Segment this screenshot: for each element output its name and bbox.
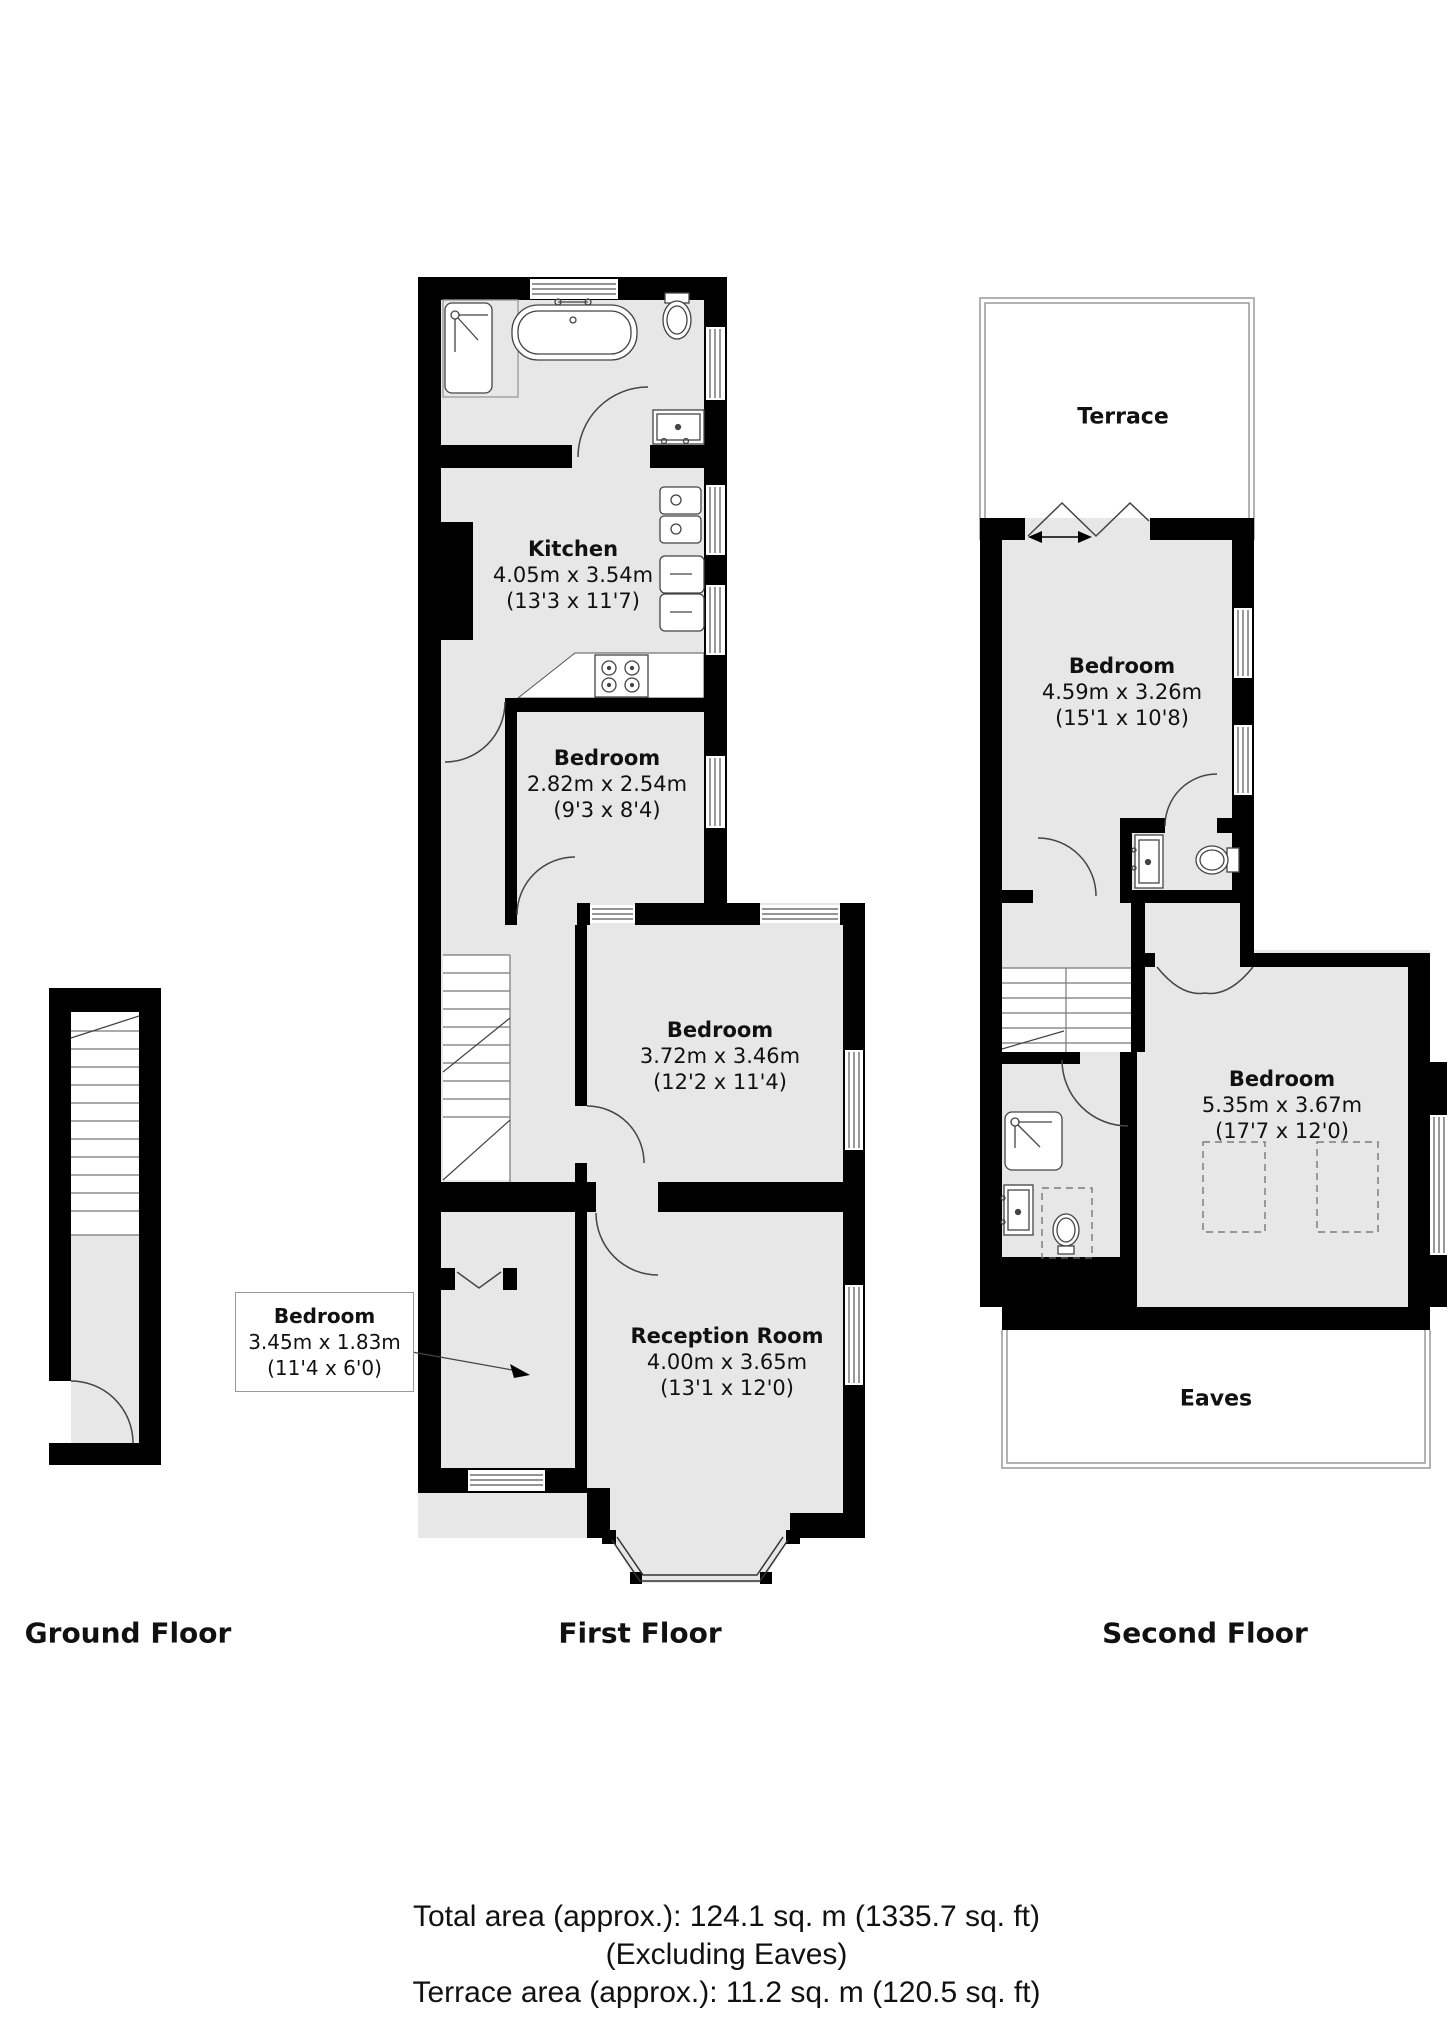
room-imperial: (15'1 x 10'8) (1042, 705, 1202, 731)
total-area-text: Total area (approx.): 124.1 sq. m (1335.… (0, 1898, 1453, 1936)
floor-title-second: Second Floor (1102, 1617, 1308, 1650)
room-label-bedroom-big2f: Bedroom 5.35m x 3.67m (17'7 x 12'0) (1202, 1066, 1362, 1144)
washbasin (1001, 1185, 1033, 1235)
room-name: Bedroom (527, 745, 687, 771)
room-metric: 4.59m x 3.26m (1042, 679, 1202, 705)
floorplan-canvas: Kitchen 4.05m x 3.54m (13'3 x 11'7) Bedr… (0, 0, 1453, 2025)
toilet (663, 293, 691, 339)
room-name: Bedroom (1042, 653, 1202, 679)
terrace-area-text: Terrace area (approx.): 11.2 sq. m (120.… (0, 1974, 1453, 2012)
room-label-bedroom-middle: Bedroom 3.72m x 3.46m (12'2 x 11'4) (640, 1017, 800, 1095)
room-metric: 2.82m x 2.54m (527, 771, 687, 797)
hob (595, 655, 648, 697)
room-label-bedroom-narrow-callout: Bedroom 3.45m x 1.83m (11'4 x 6'0) (235, 1292, 414, 1392)
room-label-kitchen: Kitchen 4.05m x 3.54m (13'3 x 11'7) (493, 536, 653, 614)
room-metric: 4.00m x 3.65m (631, 1349, 824, 1375)
room-label-reception: Reception Room 4.00m x 3.65m (13'1 x 12'… (631, 1323, 824, 1401)
room-metric: 4.05m x 3.54m (493, 562, 653, 588)
ensuite-basin (1132, 835, 1163, 888)
room-name: Bedroom (640, 1017, 800, 1043)
room-name: Bedroom (1202, 1066, 1362, 1092)
second-floor-plan (980, 298, 1447, 1468)
room-metric: 5.35m x 3.67m (1202, 1092, 1362, 1118)
room-name: Kitchen (493, 536, 653, 562)
washbasin (653, 410, 704, 444)
staircase-area (443, 955, 510, 1180)
floor-title-ground: Ground Floor (25, 1617, 232, 1650)
room-imperial: (9'3 x 8'4) (527, 797, 687, 823)
room-metric: 3.45m x 1.83m (236, 1329, 413, 1355)
room-imperial: (13'1 x 12'0) (631, 1375, 824, 1401)
room-label-bedroom-small: Bedroom 2.82m x 2.54m (9'3 x 8'4) (527, 745, 687, 823)
kitchen-appliances (660, 556, 704, 631)
area-summary: Total area (approx.): 124.1 sq. m (1335.… (0, 1898, 1453, 2012)
room-label-bedroom-top2f: Bedroom 4.59m x 3.26m (15'1 x 10'8) (1042, 653, 1202, 731)
terrace-label: Terrace (1077, 405, 1169, 430)
eaves-label: Eaves (1180, 1387, 1252, 1412)
ground-floor-plan (49, 988, 161, 1465)
room-metric: 3.72m x 3.46m (640, 1043, 800, 1069)
floorplan-drawing (0, 0, 1453, 2025)
ensuite-toilet (1196, 846, 1239, 874)
staircase-area (71, 1012, 139, 1235)
floor-title-first: First Floor (558, 1617, 721, 1650)
room-imperial: (12'2 x 11'4) (640, 1069, 800, 1095)
excluding-eaves-text: (Excluding Eaves) (0, 1936, 1453, 1974)
room-name: Bedroom (236, 1303, 413, 1329)
room-name: Reception Room (631, 1323, 824, 1349)
shower-tray (1005, 1112, 1062, 1170)
room-imperial: (13'3 x 11'7) (493, 588, 653, 614)
room-imperial: (17'7 x 12'0) (1202, 1118, 1362, 1144)
bathtub (512, 299, 637, 360)
room-imperial: (11'4 x 6'0) (236, 1355, 413, 1381)
